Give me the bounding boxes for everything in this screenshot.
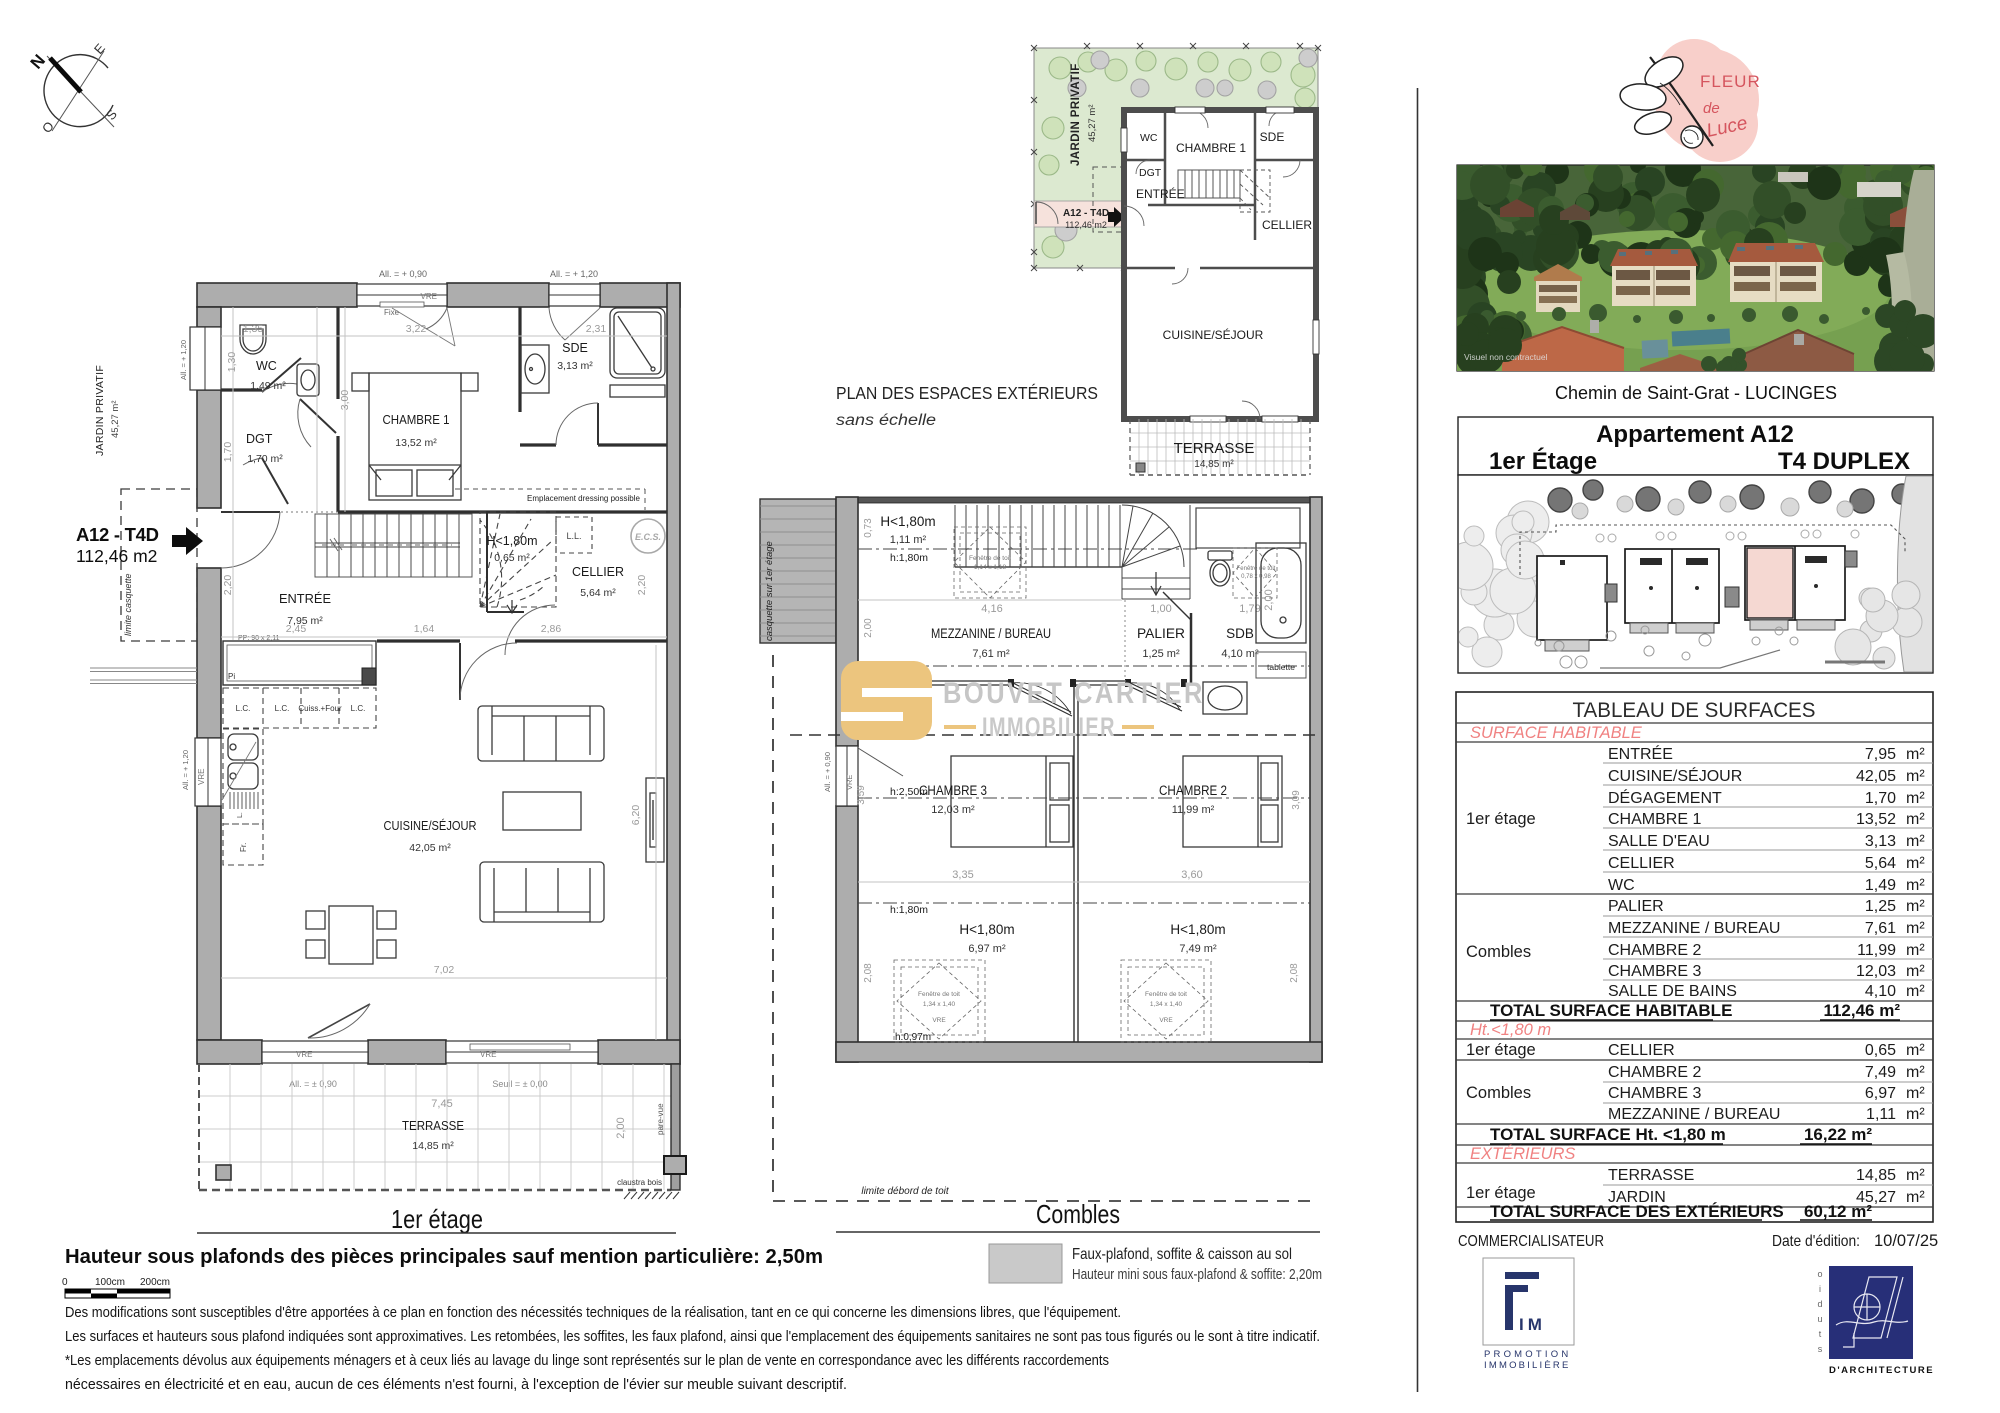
svg-text:Combles: Combles <box>1466 943 1531 961</box>
svg-text:Faux-plafond, soffite & caisso: Faux-plafond, soffite & caisson au sol <box>1072 1246 1292 1263</box>
svg-text:60,12 m²: 60,12 m² <box>1804 1202 1872 1221</box>
svg-text:MEZZANINE / BUREAU: MEZZANINE / BUREAU <box>931 626 1051 641</box>
svg-text:0: 0 <box>62 1277 68 1288</box>
svg-text:nécessaires en électricité et: nécessaires en électricité et en eau, au… <box>65 1376 847 1393</box>
svg-text:h:1,80m: h:1,80m <box>890 552 928 564</box>
svg-text:m²: m² <box>1906 811 1925 828</box>
svg-text:Ht.<1,80 m: Ht.<1,80 m <box>1470 1021 1551 1039</box>
svg-text:All. = + 0,90: All. = + 0,90 <box>379 269 427 279</box>
svg-text:PROMOTION: PROMOTION <box>1484 1349 1571 1360</box>
svg-text:1er Étage: 1er Étage <box>1489 447 1597 475</box>
svg-text:SALLE DE BAINS: SALLE DE BAINS <box>1608 983 1737 1000</box>
svg-text:0,65 m²: 0,65 m² <box>494 552 530 564</box>
svg-text:4,16: 4,16 <box>981 603 1002 615</box>
svg-text:3,59: 3,59 <box>856 785 867 805</box>
svg-text:IMMOBILIÈRE: IMMOBILIÈRE <box>1484 1360 1571 1371</box>
svg-text:SDE: SDE <box>1260 130 1285 144</box>
svg-text:limite casquette: limite casquette <box>123 573 133 636</box>
svg-text:VRE: VRE <box>845 775 854 790</box>
svg-text:H<1,80m: H<1,80m <box>1170 922 1225 937</box>
svg-text:TERRASSE: TERRASSE <box>402 1118 464 1133</box>
svg-text:TOTAL SURFACE Ht. <1,80 m: TOTAL SURFACE Ht. <1,80 m <box>1490 1125 1726 1144</box>
svg-text:112,46 m2: 112,46 m2 <box>1065 220 1107 230</box>
svg-text:JARDIN PRIVATIF: JARDIN PRIVATIF <box>1070 63 1082 166</box>
svg-text:Combles: Combles <box>1036 1199 1120 1229</box>
svg-text:h:1,80m: h:1,80m <box>890 904 928 916</box>
svg-text:Date d'édition:: Date d'édition: <box>1772 1233 1860 1250</box>
svg-text:All. = + 1,20: All. = + 1,20 <box>181 750 190 790</box>
svg-text:2,20: 2,20 <box>222 575 234 596</box>
svg-text:CUISINE/SÉJOUR: CUISINE/SÉJOUR <box>1163 327 1264 342</box>
svg-text:CUISINE/SÉJOUR: CUISINE/SÉJOUR <box>384 818 477 833</box>
svg-text:MEZZANINE / BUREAU: MEZZANINE / BUREAU <box>1608 1106 1780 1123</box>
svg-text:2,00: 2,00 <box>1263 589 1275 610</box>
svg-text:5,64: 5,64 <box>1865 855 1896 872</box>
svg-text:1,34 x 1,40: 1,34 x 1,40 <box>923 1001 956 1008</box>
svg-text:All. = ± 0,90: All. = ± 0,90 <box>289 1079 337 1089</box>
svg-text:m²: m² <box>1906 1189 1925 1206</box>
svg-text:4,10 m²: 4,10 m² <box>1221 648 1259 660</box>
svg-text:7,61 m²: 7,61 m² <box>972 648 1010 660</box>
svg-text:Appartement A12: Appartement A12 <box>1596 421 1794 448</box>
svg-text:Pi: Pi <box>228 672 235 681</box>
svg-text:CHAMBRE 3: CHAMBRE 3 <box>1608 1085 1701 1102</box>
svg-text:3,00: 3,00 <box>339 390 351 411</box>
svg-text:PLAN DES ESPACES EXTÉRIEURS: PLAN DES ESPACES EXTÉRIEURS <box>836 383 1098 403</box>
svg-text:o: o <box>1817 1269 1822 1279</box>
svg-text:PALIER: PALIER <box>1608 898 1664 915</box>
svg-text:100cm: 100cm <box>95 1277 125 1288</box>
svg-text:7,45: 7,45 <box>431 1098 452 1110</box>
svg-text:Fenêtre de toit: Fenêtre de toit <box>969 555 1011 562</box>
svg-text:All. = + 0,90: All. = + 0,90 <box>823 752 832 792</box>
svg-text:m²: m² <box>1906 983 1925 1000</box>
svg-text:TERRASSE: TERRASSE <box>1174 440 1255 457</box>
svg-text:L.C.: L.C. <box>236 704 251 713</box>
svg-text:CHAMBRE 2: CHAMBRE 2 <box>1608 942 1701 959</box>
svg-text:EXTÉRIEURS: EXTÉRIEURS <box>1470 1144 1575 1163</box>
svg-text:14,85 m²: 14,85 m² <box>412 1140 454 1152</box>
svg-text:7,49: 7,49 <box>1865 1064 1896 1081</box>
svg-text:ENTRÉE: ENTRÉE <box>279 591 331 606</box>
svg-text:3,09: 3,09 <box>1291 790 1302 810</box>
svg-text:All. = + 1,20: All. = + 1,20 <box>550 269 598 279</box>
svg-text:m²: m² <box>1906 1106 1925 1123</box>
svg-text:CHAMBRE 3: CHAMBRE 3 <box>919 783 987 798</box>
svg-text:13,52: 13,52 <box>1856 811 1896 828</box>
svg-text:H<1,80m: H<1,80m <box>486 534 537 548</box>
svg-text:1er étage: 1er étage <box>391 1204 483 1234</box>
svg-text:1er étage: 1er étage <box>1466 1041 1536 1059</box>
svg-text:limite débord de toit: limite débord de toit <box>861 1186 949 1197</box>
svg-text:IM: IM <box>1519 1315 1546 1334</box>
svg-text:2,86: 2,86 <box>541 623 562 635</box>
svg-text:4,10: 4,10 <box>1865 983 1896 1000</box>
svg-text:JARDIN PRIVATIF: JARDIN PRIVATIF <box>94 365 106 456</box>
svg-text:m²: m² <box>1906 855 1925 872</box>
svg-text:12,03 m²: 12,03 m² <box>931 804 975 816</box>
svg-text:2,00: 2,00 <box>863 618 874 638</box>
svg-text:COMMERCIALISATEUR: COMMERCIALISATEUR <box>1458 1233 1604 1250</box>
svg-text:1,11 m²: 1,11 m² <box>890 534 927 546</box>
svg-text:5,64 m²: 5,64 m² <box>580 587 616 599</box>
svg-text:6,20: 6,20 <box>630 805 642 826</box>
svg-text:i: i <box>1819 1284 1821 1294</box>
svg-text:2,00: 2,00 <box>615 1117 627 1138</box>
svg-text:1er étage: 1er étage <box>1466 1184 1536 1202</box>
svg-text:1,49 m²: 1,49 m² <box>250 380 286 392</box>
svg-text:m²: m² <box>1906 1042 1925 1059</box>
svg-text:DGT: DGT <box>1139 167 1162 179</box>
svg-text:Fr.: Fr. <box>239 843 248 852</box>
svg-text:L.C.: L.C. <box>351 704 366 713</box>
svg-text:CELLIER: CELLIER <box>1608 855 1675 872</box>
svg-text:10/07/25: 10/07/25 <box>1874 1232 1938 1250</box>
svg-text:12,03: 12,03 <box>1856 963 1896 980</box>
svg-text:Chemin de Saint-Grat - LUCINGE: Chemin de Saint-Grat - LUCINGES <box>1555 383 1837 403</box>
svg-text:2,31: 2,31 <box>586 323 607 335</box>
svg-text:m²: m² <box>1906 1064 1925 1081</box>
svg-text:3,60: 3,60 <box>1181 869 1202 881</box>
svg-text:D'ARCHITECTURE: D'ARCHITECTURE <box>1829 1365 1934 1376</box>
svg-text:42,05: 42,05 <box>1856 768 1896 785</box>
svg-text:CELLIER: CELLIER <box>1608 1042 1675 1059</box>
svg-text:2,20: 2,20 <box>636 575 648 596</box>
svg-text:VRE: VRE <box>932 1017 946 1024</box>
svg-text:L.L.: L.L. <box>566 531 581 541</box>
svg-text:VRE: VRE <box>1159 1017 1173 1024</box>
svg-text:1,64: 1,64 <box>414 623 435 635</box>
svg-text:m²: m² <box>1906 942 1925 959</box>
svg-text:2,08: 2,08 <box>863 963 874 983</box>
svg-text:pare-vue: pare-vue <box>656 1103 665 1135</box>
svg-text:CHAMBRE 3: CHAMBRE 3 <box>1608 963 1701 980</box>
svg-text:sans échelle: sans échelle <box>836 412 936 429</box>
svg-text:tablette: tablette <box>1267 662 1295 672</box>
svg-text:m²: m² <box>1906 746 1925 763</box>
svg-text:Seuil = ± 0,00: Seuil = ± 0,00 <box>492 1079 547 1089</box>
svg-text:Fenêtre de toit: Fenêtre de toit <box>1145 991 1187 998</box>
svg-text:42,05 m²: 42,05 m² <box>409 842 451 854</box>
svg-text:SURFACE HABITABLE: SURFACE HABITABLE <box>1470 724 1643 742</box>
svg-text:MEZZANINE / BUREAU: MEZZANINE / BUREAU <box>1608 920 1780 937</box>
svg-text:3,13 m²: 3,13 m² <box>557 360 593 372</box>
svg-text:FLEUR: FLEUR <box>1700 72 1761 91</box>
svg-text:6,97 m²: 6,97 m² <box>968 943 1006 955</box>
svg-text:m²: m² <box>1906 920 1925 937</box>
svg-text:IMMOBILIER: IMMOBILIER <box>982 712 1116 742</box>
svg-text:SDE: SDE <box>562 341 588 355</box>
svg-text:1er étage: 1er étage <box>1466 810 1536 828</box>
svg-text:7,95: 7,95 <box>1865 746 1896 763</box>
svg-text:H<1,80m: H<1,80m <box>959 922 1014 937</box>
svg-text:Des modifications sont suscept: Des modifications sont susceptibles d'êt… <box>65 1304 1121 1321</box>
svg-text:Visuel non contractuel: Visuel non contractuel <box>1464 352 1548 362</box>
svg-text:s: s <box>1818 1344 1823 1354</box>
svg-text:DÉGAGEMENT: DÉGAGEMENT <box>1608 788 1722 807</box>
svg-text:DGT: DGT <box>246 432 273 446</box>
svg-text:m²: m² <box>1906 877 1925 894</box>
svg-text:ENTRÉE: ENTRÉE <box>1136 186 1185 201</box>
svg-text:CHAMBRE 2: CHAMBRE 2 <box>1159 783 1227 798</box>
svg-text:112,46 m2: 112,46 m2 <box>76 546 157 566</box>
svg-text:14,85 m²: 14,85 m² <box>1194 459 1234 470</box>
svg-text:m²: m² <box>1906 898 1925 915</box>
svg-text:CHAMBRE 1: CHAMBRE 1 <box>383 413 450 427</box>
svg-text:Emplacement dressing possible: Emplacement dressing possible <box>527 494 640 503</box>
svg-text:Fenêtre de toit: Fenêtre de toit <box>918 991 960 998</box>
svg-text:h:0,97m: h:0,97m <box>895 1032 931 1043</box>
svg-text:A12 - T4D: A12 - T4D <box>1063 208 1109 219</box>
svg-text:3,35: 3,35 <box>952 869 973 881</box>
svg-text:VRE: VRE <box>480 1050 496 1059</box>
svg-text:1,49: 1,49 <box>1865 877 1896 894</box>
svg-text:m²: m² <box>1906 790 1925 807</box>
svg-text:CELLIER: CELLIER <box>572 565 624 579</box>
svg-text:WC: WC <box>256 359 277 373</box>
svg-text:CHAMBRE 2: CHAMBRE 2 <box>1608 1064 1701 1081</box>
svg-text:11,99 m²: 11,99 m² <box>1172 804 1215 816</box>
svg-text:1,35: 1,35 <box>243 323 264 335</box>
svg-text:Cuiss.+Four: Cuiss.+Four <box>298 704 342 713</box>
svg-text:T4 DUPLEX: T4 DUPLEX <box>1778 448 1910 475</box>
svg-text:TOTAL SURFACE DES EXTÉRIEURS: TOTAL SURFACE DES EXTÉRIEURS <box>1490 1202 1784 1221</box>
svg-text:Hauteur sous plafonds des pièc: Hauteur sous plafonds des pièces princip… <box>65 1246 823 1268</box>
svg-text:VRE: VRE <box>421 292 437 301</box>
svg-text:L.C.: L.C. <box>275 704 290 713</box>
svg-text:E.C.S.: E.C.S. <box>635 532 661 542</box>
svg-text:11,99: 11,99 <box>1857 942 1896 959</box>
svg-text:ENTRÉE: ENTRÉE <box>1608 744 1673 763</box>
svg-text:3,22: 3,22 <box>406 323 427 335</box>
svg-text:0,73: 0,73 <box>863 518 874 538</box>
svg-text:7,49 m²: 7,49 m² <box>1179 943 1217 955</box>
svg-text:claustra bois: claustra bois <box>617 1178 662 1187</box>
svg-text:CUISINE/SÉJOUR: CUISINE/SÉJOUR <box>1608 766 1742 785</box>
svg-text:Combles: Combles <box>1466 1084 1531 1102</box>
svg-text:m²: m² <box>1906 1085 1925 1102</box>
svg-text:m²: m² <box>1906 833 1925 850</box>
svg-text:1,70 m²: 1,70 m² <box>247 453 283 465</box>
svg-text:Les surfaces et hauteurs sous: Les surfaces et hauteurs sous plafond in… <box>65 1328 1320 1345</box>
svg-text:PALIER: PALIER <box>1137 626 1185 641</box>
svg-text:0,78 x 0,98: 0,78 x 0,98 <box>1241 574 1271 580</box>
svg-text:m²: m² <box>1906 768 1925 785</box>
svg-text:Fixe: Fixe <box>384 308 400 317</box>
svg-text:1,70: 1,70 <box>222 442 234 463</box>
svg-text:m²: m² <box>1906 963 1925 980</box>
svg-text:d: d <box>1817 1299 1822 1309</box>
svg-text:TERRASSE: TERRASSE <box>1608 1167 1694 1184</box>
svg-text:1,00: 1,00 <box>1150 603 1171 615</box>
svg-text:1,25 m²: 1,25 m² <box>1142 648 1180 660</box>
svg-text:TABLEAU DE SURFACES: TABLEAU DE SURFACES <box>1573 699 1816 722</box>
svg-text:de: de <box>1703 100 1720 117</box>
svg-text:Fenêtre de toit: Fenêtre de toit <box>1237 566 1276 572</box>
svg-text:1,79: 1,79 <box>1239 603 1260 615</box>
svg-text:7,02: 7,02 <box>434 964 455 976</box>
svg-text:200cm: 200cm <box>140 1277 170 1288</box>
svg-text:13,52 m²: 13,52 m² <box>395 437 437 449</box>
svg-text:0,65: 0,65 <box>1865 1042 1896 1059</box>
svg-text:m²: m² <box>1906 1167 1925 1184</box>
svg-text:1,25: 1,25 <box>1865 898 1896 915</box>
svg-text:WC: WC <box>1608 877 1635 894</box>
svg-text:14,85: 14,85 <box>1856 1167 1896 1184</box>
svg-text:7,61: 7,61 <box>1865 920 1896 937</box>
svg-text:45,27 m²: 45,27 m² <box>110 401 121 439</box>
svg-text:1,34 x 1,40: 1,34 x 1,40 <box>1150 1001 1183 1008</box>
svg-text:112,46 m²: 112,46 m² <box>1823 1001 1900 1020</box>
svg-text:WC: WC <box>1140 132 1158 144</box>
svg-text:TOTAL SURFACE HABITABLE: TOTAL SURFACE HABITABLE <box>1490 1001 1732 1020</box>
svg-text:*Les emplacements dévolus aux: *Les emplacements dévolus aux équipement… <box>65 1352 1109 1369</box>
svg-text:16,22 m²: 16,22 m² <box>1804 1125 1872 1144</box>
svg-text:All. = + 1,20: All. = + 1,20 <box>179 340 188 380</box>
svg-text:3,13: 3,13 <box>1865 833 1896 850</box>
svg-text:CHAMBRE 1: CHAMBRE 1 <box>1176 141 1246 155</box>
svg-text:BOUVET CARTIER: BOUVET CARTIER <box>943 677 1205 710</box>
svg-text:2,08: 2,08 <box>1289 963 1300 983</box>
svg-text:Hauteur mini sous faux-plafond: Hauteur mini sous faux-plafond & soffite… <box>1072 1266 1322 1283</box>
svg-text:1,11: 1,11 <box>1866 1106 1896 1123</box>
svg-text:H<1,80m: H<1,80m <box>880 514 935 529</box>
svg-text:45,27 m²: 45,27 m² <box>1087 105 1098 143</box>
svg-text:casquette sur 1er étage: casquette sur 1er étage <box>764 541 775 641</box>
svg-text:CELLIER: CELLIER <box>1262 218 1312 232</box>
svg-text:SALLE D'EAU: SALLE D'EAU <box>1608 833 1710 850</box>
svg-text:SDB: SDB <box>1226 626 1254 641</box>
svg-text:u: u <box>1817 1314 1822 1324</box>
svg-text:VRE: VRE <box>296 1050 312 1059</box>
svg-text:1,30: 1,30 <box>226 352 238 373</box>
svg-text:CHAMBRE 1: CHAMBRE 1 <box>1608 811 1701 828</box>
svg-text:1,14 x 1,18: 1,14 x 1,18 <box>974 564 1007 571</box>
svg-text:A12 - T4D: A12 - T4D <box>76 524 159 545</box>
svg-text:2,45: 2,45 <box>286 623 307 635</box>
svg-text:VRE: VRE <box>197 769 206 785</box>
svg-text:1,70: 1,70 <box>1865 790 1896 807</box>
svg-text:L.: L. <box>237 812 244 818</box>
svg-text:6,97: 6,97 <box>1865 1085 1896 1102</box>
